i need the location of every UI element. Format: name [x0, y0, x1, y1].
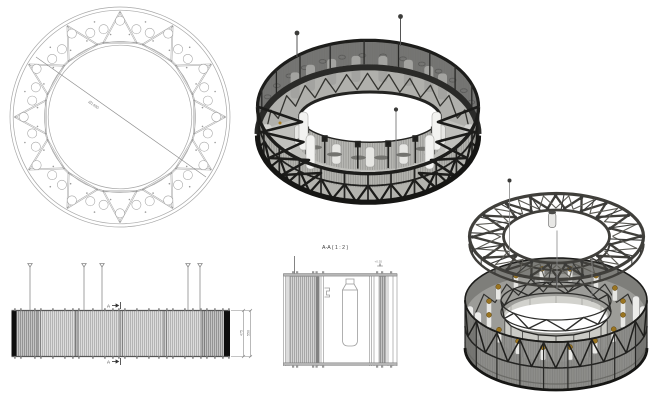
- svg-text:550: 550: [246, 330, 250, 336]
- svg-text:A: A: [107, 360, 110, 365]
- svg-text:A: A: [107, 304, 110, 309]
- svg-text:+0.55: +0.55: [375, 260, 383, 264]
- svg-text:A-A ( 1 : 2 ): A-A ( 1 : 2 ): [322, 245, 349, 251]
- svg-text:475: 475: [239, 330, 243, 336]
